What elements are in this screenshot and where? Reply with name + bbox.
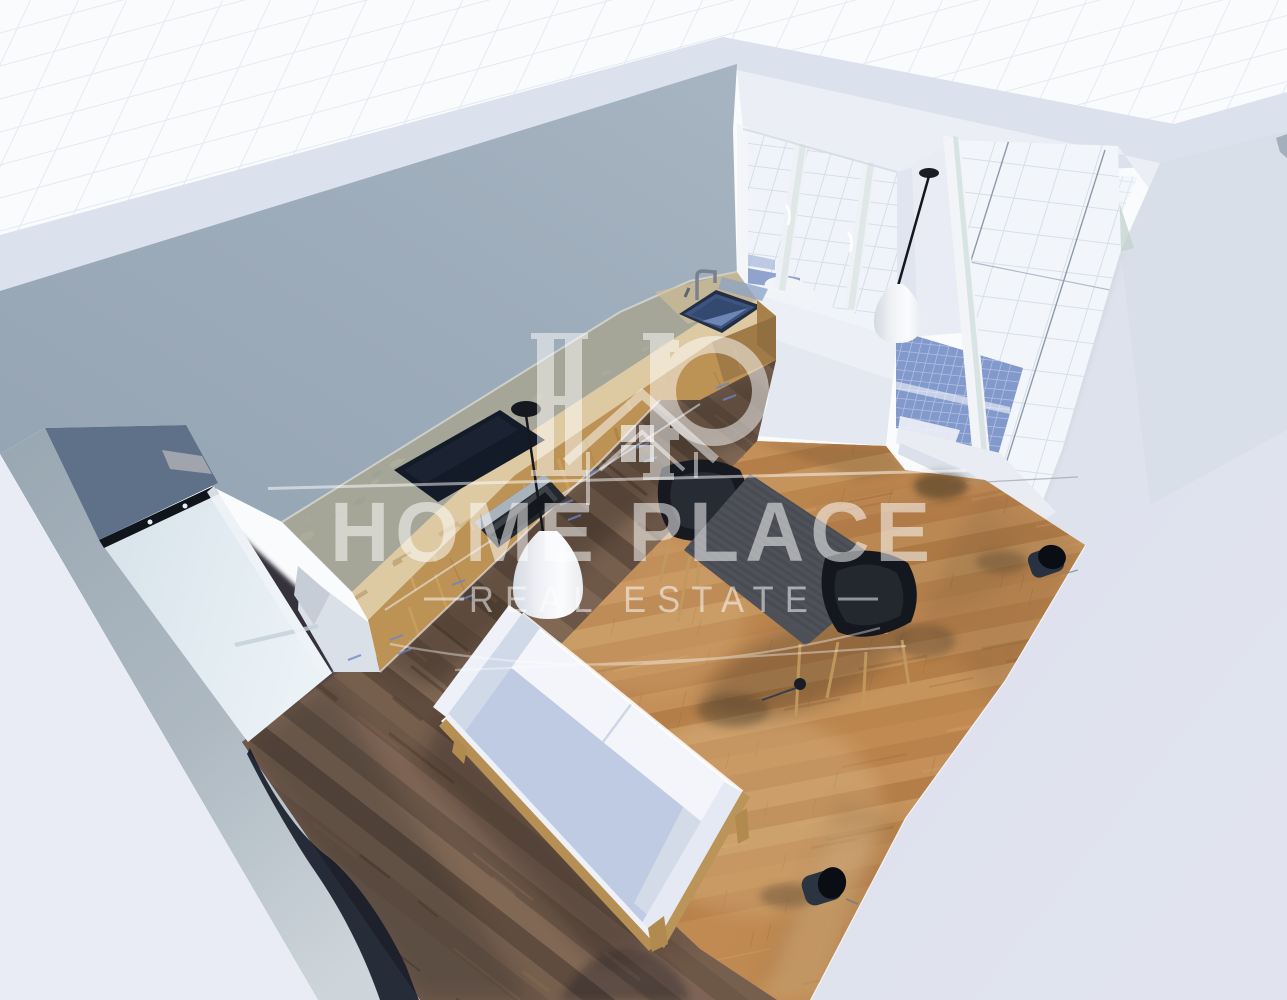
svg-text:HOME PLACE: HOME PLACE bbox=[330, 485, 936, 579]
svg-text:REAL ESTATE: REAL ESTATE bbox=[469, 579, 819, 620]
